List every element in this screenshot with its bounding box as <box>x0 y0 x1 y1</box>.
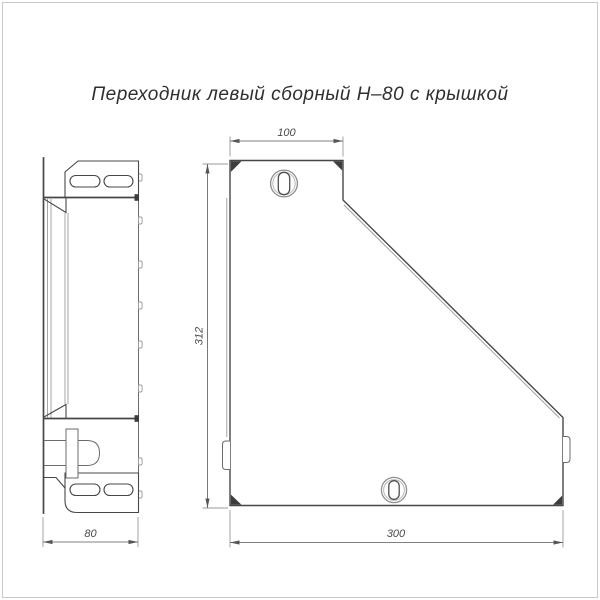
technical-drawing: 80 <box>0 0 600 600</box>
dimension-bottom-width: 300 <box>230 510 563 548</box>
side-latch-right <box>563 437 570 463</box>
dimension-label-80: 80 <box>84 528 97 540</box>
bottom-flange-plate <box>65 473 139 513</box>
dimension-side-depth: 80 <box>43 517 138 547</box>
step-edge <box>44 478 65 489</box>
side-view: 80 <box>43 158 142 547</box>
dimension-label-100: 100 <box>277 127 296 139</box>
cover-clip-tabs <box>139 174 143 498</box>
dimension-top-width: 100 <box>230 127 343 157</box>
top-flange-plate <box>65 161 139 198</box>
side-latch-left <box>223 441 231 470</box>
dimension-label-300: 300 <box>387 528 406 540</box>
front-view: 100 312 300 <box>194 127 571 548</box>
latch-strap <box>66 429 78 478</box>
body-outline <box>230 161 563 506</box>
dimension-label-312: 312 <box>194 327 206 345</box>
